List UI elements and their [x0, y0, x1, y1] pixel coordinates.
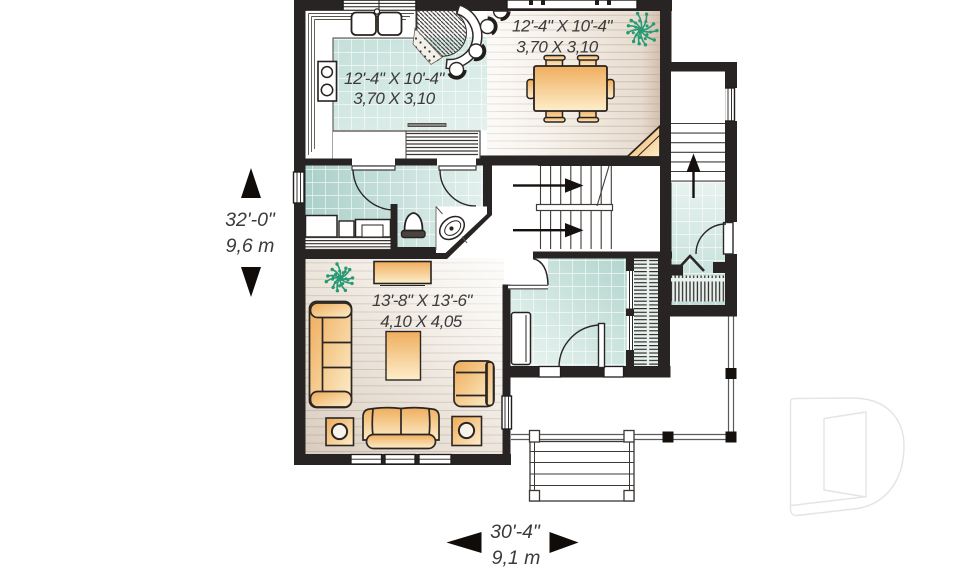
svg-text:4,10 X 4,05: 4,10 X 4,05	[380, 312, 463, 331]
svg-text:32'-0": 32'-0"	[225, 209, 276, 231]
svg-text:9,1 m: 9,1 m	[492, 547, 541, 569]
svg-text:30'-4": 30'-4"	[490, 521, 541, 543]
svg-text:13'-8" X 13'-6": 13'-8" X 13'-6"	[372, 291, 473, 310]
svg-text:12'-4" X 10'-4": 12'-4" X 10'-4"	[344, 69, 445, 88]
svg-text:12'-4" X 10'-4": 12'-4" X 10'-4"	[512, 17, 613, 36]
svg-text:3,70 X 3,10: 3,70 X 3,10	[353, 89, 436, 108]
svg-text:9,6 m: 9,6 m	[226, 235, 275, 257]
svg-text:3,70 X 3,10: 3,70 X 3,10	[516, 38, 599, 57]
